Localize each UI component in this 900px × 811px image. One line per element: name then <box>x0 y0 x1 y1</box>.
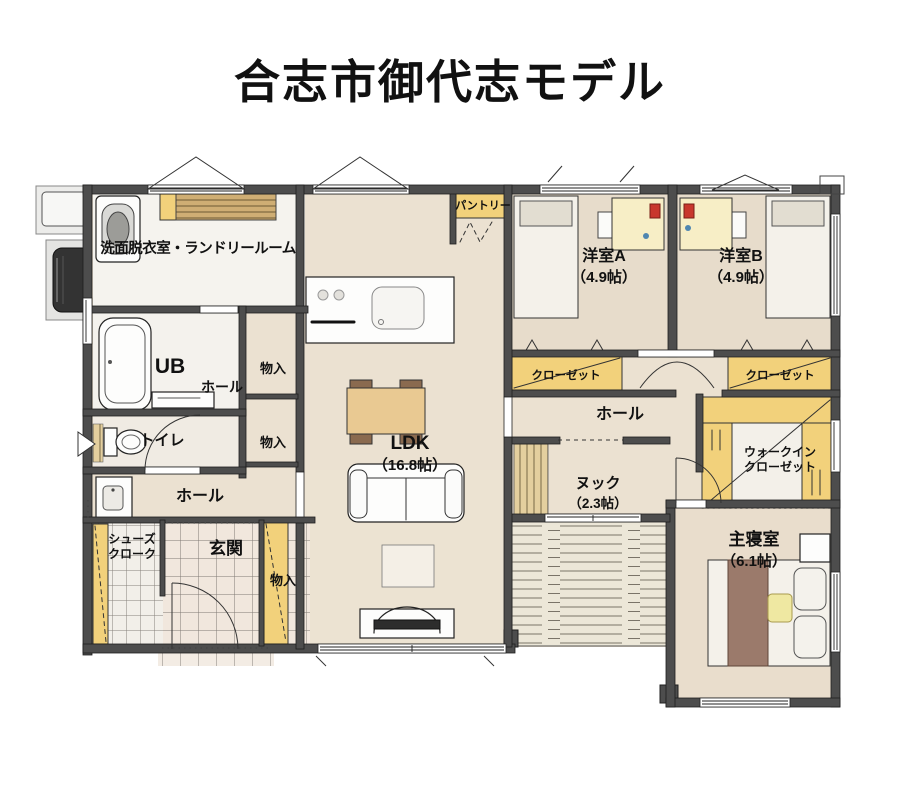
label-bedroom-a: 洋室A <box>582 246 626 265</box>
label-shoe-cloak-1: シューズ <box>108 531 155 546</box>
nook-louver <box>514 444 548 516</box>
label-hall-upper: ホール <box>201 379 243 395</box>
tv-board <box>360 607 454 638</box>
label-storage-mid: 物入 <box>260 435 286 450</box>
label-wic-1: ウォークイン <box>744 445 816 459</box>
page-title: 合志市御代志モデル <box>234 56 666 108</box>
window-right-bedroom-b <box>831 214 840 316</box>
bed-a <box>514 196 578 318</box>
label-storage-entrance: 物入 <box>270 573 296 588</box>
label-laundry: 洗面脱衣室・ランドリールーム <box>100 239 296 257</box>
drying-rack <box>160 194 276 220</box>
window-bottom-ldk <box>318 644 506 653</box>
label-bath: UB <box>155 355 185 378</box>
label-bedroom-b: 洋室B <box>719 246 763 265</box>
window-right-master <box>831 572 840 652</box>
label-nook-size: （2.3帖） <box>568 495 627 511</box>
label-toilet: トイレ <box>139 432 184 449</box>
label-closet-a: クローゼット <box>532 368 601 382</box>
window-right-wic <box>831 420 840 472</box>
floor-plan-canvas: 合志市御代志モデル <box>0 0 900 806</box>
eave-triangle-center <box>313 157 408 189</box>
label-master-size: （6.1帖） <box>721 552 787 570</box>
label-master: 主寝室 <box>729 529 780 549</box>
label-storage-upper: 物入 <box>260 361 286 376</box>
window-top-bedroom-a <box>540 166 640 194</box>
label-bedroom-b-size: （4.9帖） <box>708 268 774 286</box>
window-bottom-master <box>700 698 790 707</box>
master-bed <box>708 560 830 666</box>
window-left-laundry <box>83 298 92 344</box>
bed-b <box>766 196 830 318</box>
kitchen-island <box>306 277 454 343</box>
label-ldk: LDK <box>390 433 429 454</box>
label-hall-center: ホール <box>596 405 644 423</box>
label-entrance: 玄関 <box>209 538 243 558</box>
label-wic-2: クローゼット <box>744 459 816 474</box>
label-shoe-cloak-2: クローク <box>108 547 156 561</box>
wood-deck <box>504 518 678 703</box>
label-bedroom-a-size: （4.9帖） <box>571 268 637 286</box>
label-pantry: パントリー <box>455 199 511 212</box>
label-ldk-size: （16.8帖） <box>373 456 447 474</box>
washbasin-icon <box>96 477 132 519</box>
shoe-cloak-shelf <box>93 524 108 644</box>
rug <box>382 545 434 587</box>
label-closet-b: クローゼット <box>746 368 815 382</box>
side-table <box>800 534 830 562</box>
label-hall-lower: ホール <box>176 487 224 505</box>
eave-triangle-left <box>148 157 244 189</box>
window-nook-deck <box>545 514 641 522</box>
label-nook: ヌック <box>575 475 620 492</box>
